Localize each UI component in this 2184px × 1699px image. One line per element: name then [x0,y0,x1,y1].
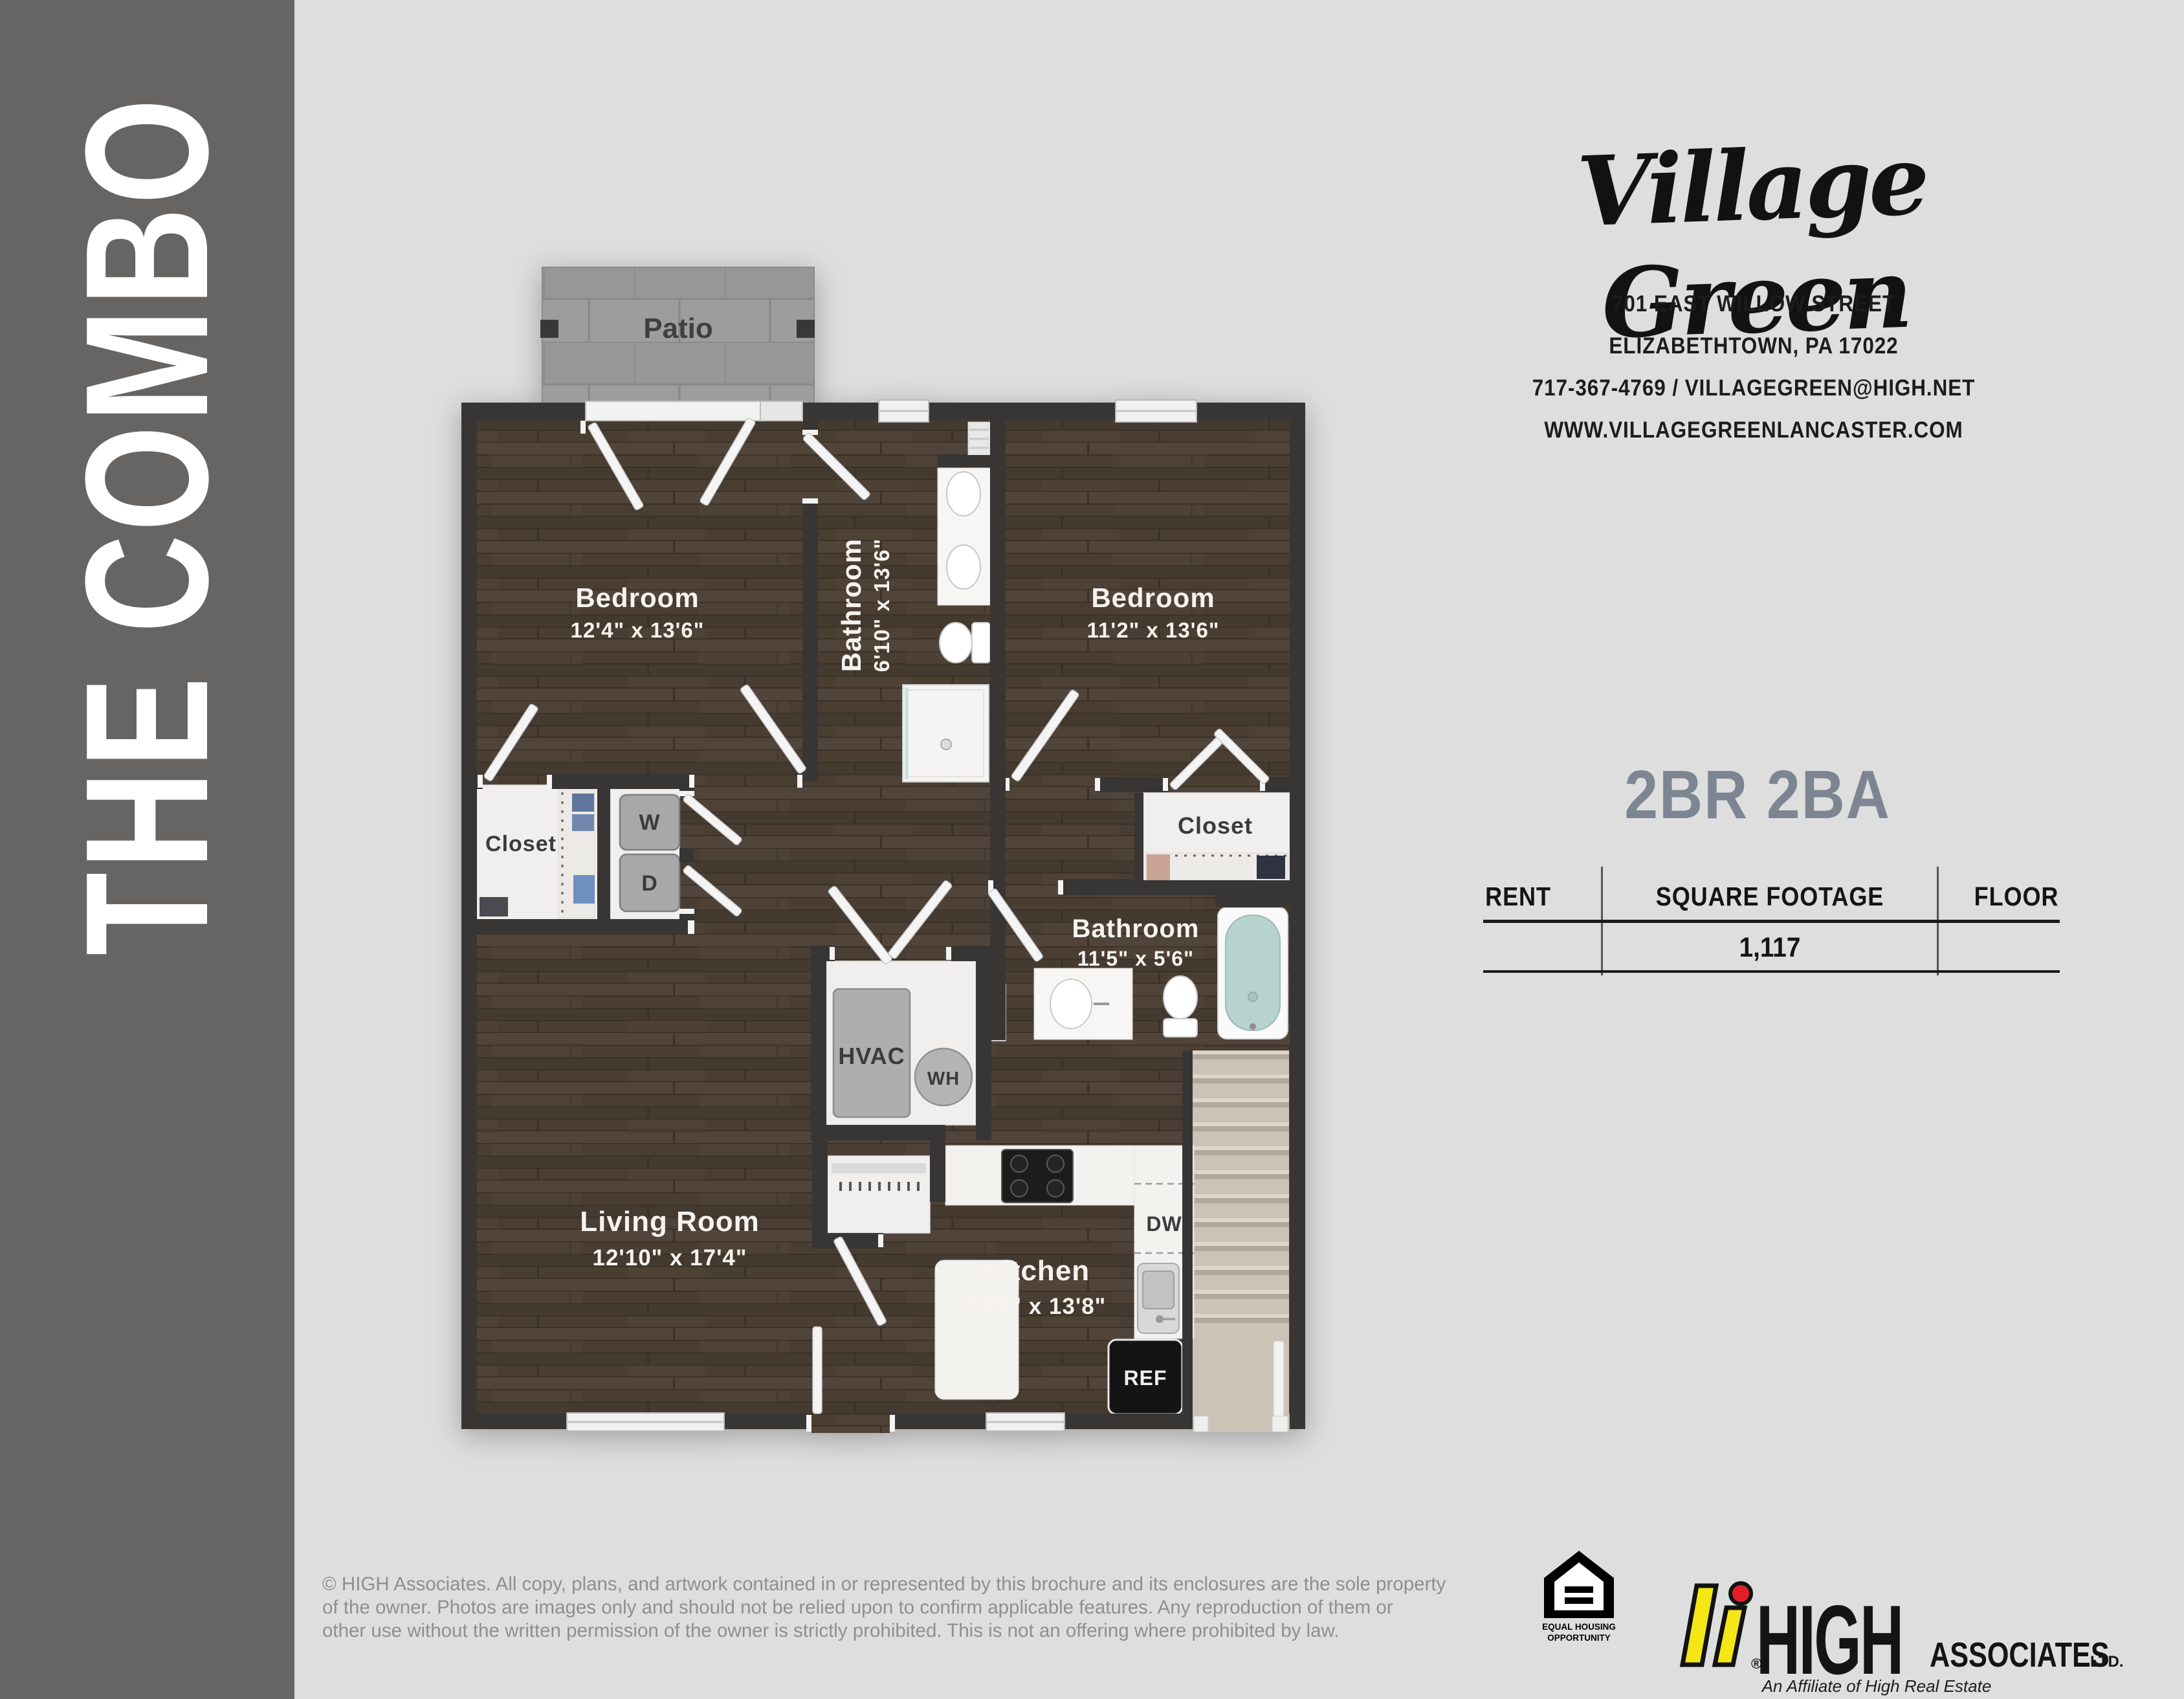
copyright-line: other use without the written permission… [322,1619,1446,1643]
unit-type: 2BR 2BA [1473,756,2042,834]
washer-label: W [639,810,660,835]
sink [947,545,980,589]
patio-label: Patio [643,313,713,344]
address-website: WWW.VILLAGEGREENLANCASTER.COM [1462,419,2045,442]
entry-door [813,1327,822,1414]
table-header-rent: RENT [1485,882,1551,912]
hvac-label: HVAC [838,1043,905,1069]
bedroom-left-dims: 12'4" x 13'6" [571,618,705,642]
kitchen-label: Kitchen [981,1255,1090,1287]
bathroom-top-label: Bathroom [836,539,866,672]
sidelight [760,401,802,421]
high-logo-name: HIGH [1756,1591,1903,1689]
kitchen-dims: 13'8" x 13'8" [965,1294,1107,1319]
dryer-label: D [641,871,658,896]
table-header-rule [1483,920,2060,923]
brochure-page: THE COMBO Village Green 701 EAST WILLOW … [0,0,2184,1699]
bathroom-top-dims: 6'10" x 13'6" [870,539,894,672]
window [986,1413,1064,1431]
window [1116,400,1197,422]
equal-housing-logo: EQUAL HOUSING OPPORTUNITY [1543,1549,1615,1647]
bedroom-right-label: Bedroom [1091,583,1215,613]
dishwasher-label: DW [1146,1212,1182,1236]
eho-text-line1: EQUAL HOUSING [1543,1622,1615,1632]
address-street: 701 EAST WILLOW STREET [1462,293,2045,316]
table-header-floor: FLOOR [1974,882,2059,912]
high-logo-tagline: An Affiliate of High Real Estate Group L… [1747,1676,2006,1699]
bathroom-lower-label: Bathroom [1072,915,1200,943]
floor-plan: Patio Bedroom 12'4" x 13'6" Bathroom 6'1… [447,252,1320,1456]
living-room-label: Living Room [580,1206,759,1238]
address-phone-email: 717-367-4769 / VILLAGEGREEN@HIGH.NET [1462,377,2045,400]
refrigerator-label: REF [1124,1366,1167,1390]
window [879,400,929,422]
entry-recess [811,1414,890,1433]
stove [1002,1149,1073,1203]
sink [947,472,980,516]
sink [1050,979,1092,1028]
bathroom-lower-dims: 11'5" x 5'6" [1077,947,1194,970]
property-address: 701 EAST WILLOW STREET ELIZABETHTOWN, PA… [1462,293,2045,461]
bedroom-left-label: Bedroom [575,583,699,613]
copyright-line: of the owner. Photos are images only and… [322,1596,1446,1619]
sidebar: THE COMBO [0,0,294,1699]
closet-left-label: Closet [485,832,557,856]
bedroom-right-dims: 11'2" x 13'6" [1087,618,1220,642]
closet-right-label: Closet [1178,812,1253,839]
kitchen-sink [1138,1263,1179,1333]
address-city: ELIZABETHTOWN, PA 17022 [1462,335,2045,358]
toilet [940,623,990,663]
toilet [1164,976,1197,1037]
table-value-square-footage: 1,117 [1739,932,1801,964]
copyright-text: © HIGH Associates. All copy, plans, and … [322,1573,1446,1643]
patio-door-opening [586,401,760,421]
living-room-dims: 12'10" x 17'4" [592,1245,747,1271]
water-heater-label: WH [927,1069,960,1089]
high-logo-suffix: ASSOCIATES [1930,1638,2110,1672]
table-bottom-rule [1483,970,2060,973]
closet-right-decor [1145,853,1288,880]
eho-text-line2: OPPORTUNITY [1547,1633,1611,1643]
high-hi-mark-icon [1677,1581,1758,1674]
table-header-square-footage: SQUARE FOOTAGE [1656,882,1884,912]
staircase [1193,1050,1289,1432]
bathtub [1218,907,1288,1039]
floorplan-title: THE COMBO [60,95,235,955]
high-logo-ltd: LTD. [2090,1654,2124,1670]
copyright-line: © HIGH Associates. All copy, plans, and … [322,1573,1446,1596]
window [567,1413,724,1431]
shower [903,685,989,782]
